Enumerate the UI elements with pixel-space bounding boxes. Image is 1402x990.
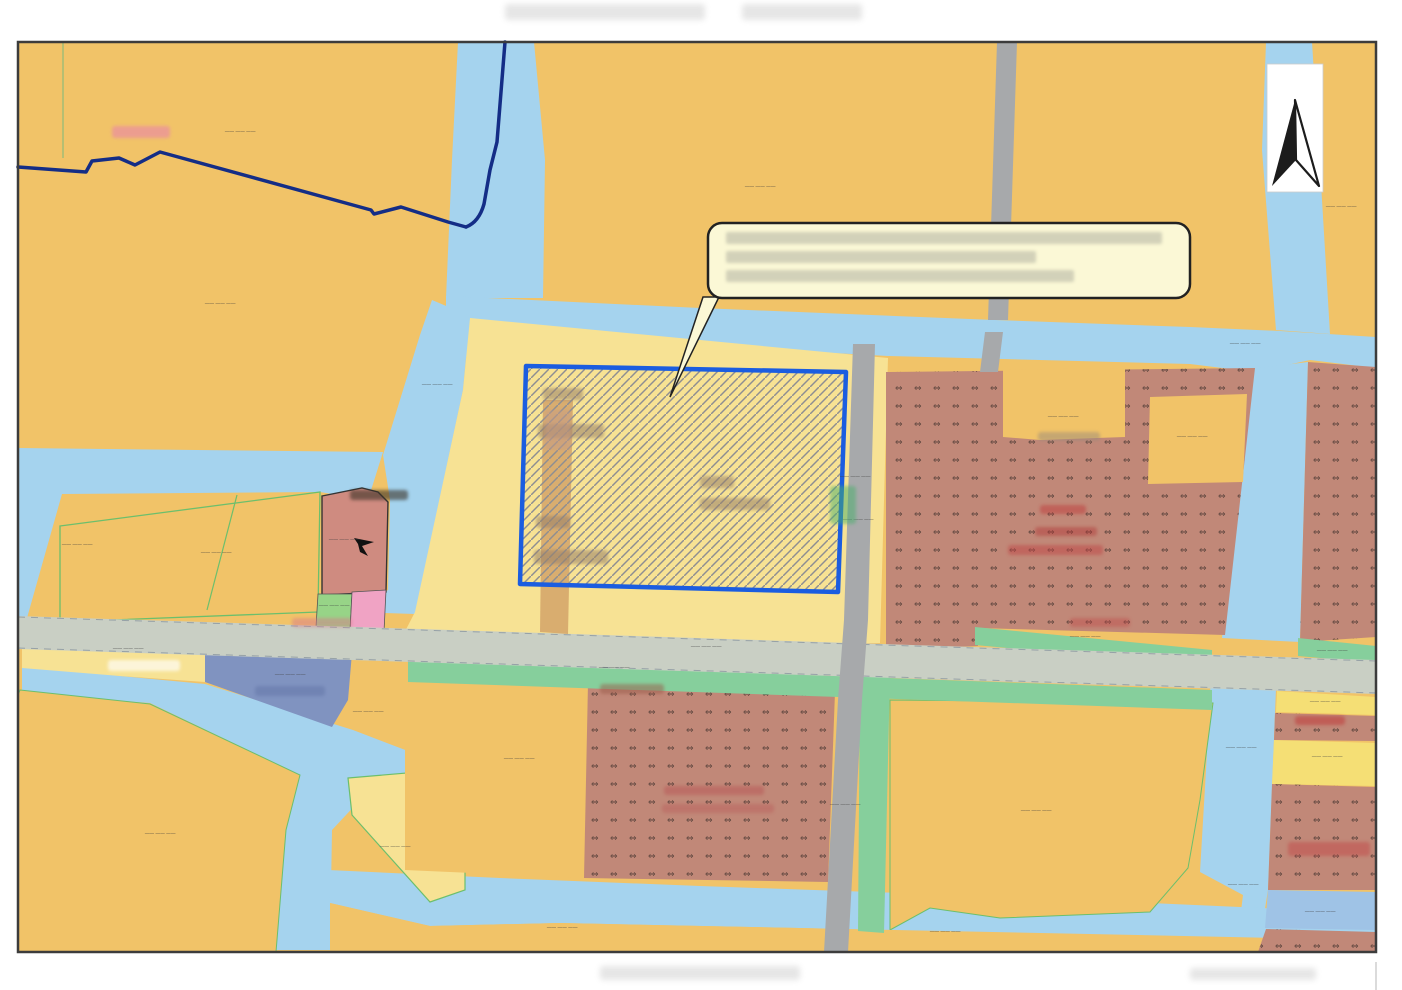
parcel-code-label: —— —— —— <box>113 646 144 652</box>
parcel-code-label: —— —— —— <box>422 382 453 388</box>
subject-text-blob <box>700 498 770 510</box>
callout-text-line <box>726 251 1036 263</box>
parcel-code-label: —— —— —— <box>201 550 232 556</box>
illegible-smudge <box>1008 545 1103 555</box>
parcel-code-label: —— —— —— <box>599 665 630 671</box>
parcel-code-label: —— —— —— <box>504 756 535 762</box>
parcel-small-pink <box>350 590 386 632</box>
village-pattern-overlay <box>1300 362 1376 642</box>
callout-text-line <box>726 270 1074 282</box>
illegible-smudge <box>545 410 571 450</box>
parcel-code-label: —— —— —— <box>380 844 411 850</box>
parcel-code-label: —— —— —— <box>225 129 256 135</box>
parcel-farmland-south-1 <box>405 686 588 878</box>
parcel-code-label: —— —— —— <box>319 603 350 609</box>
parcel-code-label: —— —— —— <box>745 184 776 190</box>
illegible-smudge <box>1295 716 1345 725</box>
parcel-code-label: —— —— —— <box>1230 341 1261 347</box>
illegible-smudge <box>350 490 408 500</box>
illegible-smudge <box>112 126 170 138</box>
parcel-code-label: —— —— —— <box>691 644 722 650</box>
parcel-code-label: —— —— —— <box>145 831 176 837</box>
illegible-smudge <box>662 804 774 813</box>
village-pattern-overlay <box>1258 929 1376 952</box>
illegible-smudge <box>664 786 764 795</box>
parcel-code-label: —— —— —— <box>1048 414 1079 420</box>
illegible-smudge <box>1035 527 1097 536</box>
parcel-code-label: —— —— —— <box>547 925 578 931</box>
village-pattern-overlay <box>584 683 835 882</box>
margin-watermark <box>742 4 862 20</box>
parcel-code-label: —— —— —— <box>930 929 961 935</box>
parcel-code-label: —— —— —— <box>840 474 871 480</box>
illegible-smudge <box>1038 432 1100 441</box>
parcel-code-label: —— —— —— <box>353 709 384 715</box>
illegible-smudge <box>1288 842 1370 856</box>
illegible-smudge <box>1040 505 1086 514</box>
parcel-code-label: —— —— —— <box>1177 434 1208 440</box>
illegible-smudge <box>600 684 664 694</box>
built-up-cluster <box>316 488 388 632</box>
parcel-code-label: —— —— —— <box>1228 882 1259 888</box>
margin-watermark <box>1190 968 1316 980</box>
illegible-smudge <box>255 686 325 696</box>
parcel-farmland-southeast <box>890 700 1213 930</box>
subject-text-blob <box>536 516 570 528</box>
parcel-code-label: —— —— —— <box>329 537 360 543</box>
callout-text-line <box>726 232 1162 244</box>
parcel-inset-1 <box>1003 368 1125 440</box>
illegible-smudge <box>292 618 352 627</box>
subject-text-blob <box>543 388 583 400</box>
canal-northwest <box>446 42 545 298</box>
illegible-smudge <box>830 486 856 524</box>
parcel-yellow-east-2 <box>1272 740 1376 786</box>
parcel-code-label: —— —— —— <box>1326 204 1357 210</box>
parcel-code-label: —— —— —— <box>205 301 236 307</box>
map-page: ⇔ <box>0 0 1402 990</box>
parcel-code-label: —— —— —— <box>275 672 306 678</box>
parcel-code-label: —— —— —— <box>1312 754 1343 760</box>
margin-watermark <box>505 4 705 20</box>
margin-watermark <box>600 966 800 980</box>
parcel-code-label: —— —— —— <box>1317 648 1348 654</box>
parcel-code-label: —— —— —— <box>830 802 861 808</box>
subject-text-blob <box>534 550 608 564</box>
parcel-code-label: —— —— —— <box>62 542 93 548</box>
parcel-code-label: —— —— —— <box>1070 634 1101 640</box>
land-use-map-canvas: ⇔ <box>0 0 1402 990</box>
illegible-smudge <box>108 660 180 671</box>
parcel-code-label: —— —— —— <box>1226 745 1257 751</box>
north-arrow <box>1267 64 1323 192</box>
illegible-smudge <box>1070 618 1130 627</box>
village-pattern-overlay <box>1268 784 1376 890</box>
parcel-code-label: —— —— —— <box>1310 699 1341 705</box>
subject-text-blob <box>700 476 734 488</box>
parcel-code-label: —— —— —— <box>1021 808 1052 814</box>
parcel-code-label: —— —— —— <box>1305 909 1336 915</box>
